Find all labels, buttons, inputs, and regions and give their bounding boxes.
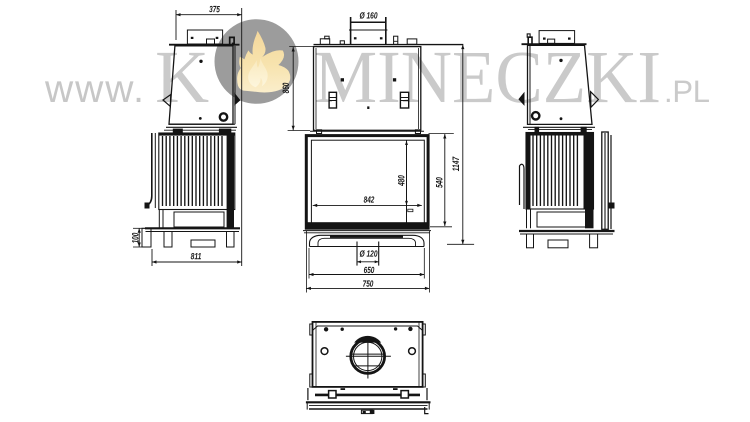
- svg-text:1147: 1147: [451, 156, 461, 171]
- svg-text:Ø 120: Ø 120: [359, 249, 377, 259]
- svg-text:750: 750: [363, 279, 374, 289]
- svg-text:.PL: .PL: [664, 74, 710, 109]
- svg-text:MINECZKI: MINECZKI: [314, 36, 661, 119]
- svg-text:811: 811: [191, 251, 202, 261]
- svg-text:K: K: [155, 36, 209, 119]
- svg-text:Ø 160: Ø 160: [359, 10, 377, 20]
- svg-text:www.: www.: [44, 68, 144, 111]
- svg-text:375: 375: [209, 4, 221, 14]
- svg-text:100: 100: [131, 233, 141, 244]
- svg-text:480: 480: [397, 175, 407, 187]
- svg-text:650: 650: [364, 265, 375, 275]
- svg-text:842: 842: [364, 195, 375, 205]
- svg-text:540: 540: [435, 177, 445, 188]
- svg-text:860: 860: [281, 83, 291, 94]
